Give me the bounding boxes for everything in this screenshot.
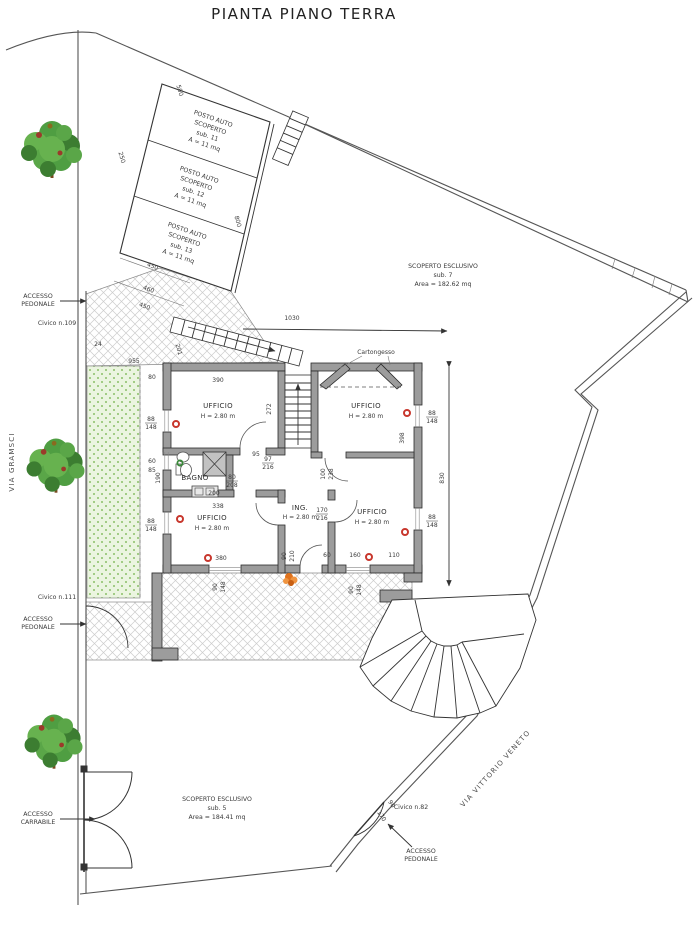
dimension-label: 216 <box>262 464 274 471</box>
dimension-label: 148 <box>356 584 363 596</box>
tree-icon <box>25 715 83 769</box>
scoperto-name: SCOPERTO ESCLUSIVO <box>182 796 252 803</box>
access-label: ACCESSO <box>406 848 436 855</box>
scoperto-sub: sub. 7 <box>434 272 453 279</box>
dimension-label: 160 <box>349 552 361 559</box>
dimension-label: 90 <box>281 552 288 560</box>
room-label-ufficio-tl: UFFICIO H = 2.80 m <box>201 402 236 420</box>
dimension-label: 272 <box>266 403 273 415</box>
dimension-label: 88 <box>428 410 436 417</box>
room-label-ing: ING. H = 2.80 m <box>283 504 318 521</box>
dimension-label: 100 <box>320 468 327 480</box>
dimension-label: 60 <box>323 552 331 559</box>
svg-text:UFFICIO: UFFICIO <box>357 508 387 516</box>
access-pedonale-right: ACCESSO PEDONALE <box>404 848 438 863</box>
dimension-label: 148 <box>145 526 157 533</box>
access-label: PEDONALE <box>21 624 55 631</box>
access-carrabile: ACCESSO CARRABILE <box>21 811 56 826</box>
room-label-ufficio-br: UFFICIO H = 2.80 m <box>355 508 390 526</box>
street-label-gramsci: VIA GRAMSCI <box>8 432 16 491</box>
svg-text:H = 2.80 m: H = 2.80 m <box>355 519 390 526</box>
svg-text:UFFICIO: UFFICIO <box>351 402 381 410</box>
dimension-label: 955 <box>128 358 140 365</box>
scoperto-esclusivo-bottom: SCOPERTO ESCLUSIVO sub. 5 Area = 184.41 … <box>182 796 252 821</box>
dimension-label: 148 <box>220 581 227 593</box>
utility-marker-green <box>177 460 182 465</box>
access-label: ACCESSO <box>23 811 53 818</box>
floor-plan-svg: PIANTA PIANO TERRA POSTO AUTO <box>0 0 700 925</box>
dimension-label: 88 <box>428 514 436 521</box>
svg-text:H = 2.80 m: H = 2.80 m <box>195 525 230 532</box>
dimension-label: 24 <box>94 341 102 348</box>
dimension-label: 380 <box>215 555 227 562</box>
dimension-label: 80 <box>228 474 236 481</box>
tree-icon <box>27 439 85 493</box>
fan-staircase <box>360 594 536 718</box>
access-label: ACCESSO <box>23 293 53 300</box>
garden-area <box>87 366 140 598</box>
room-label-ufficio-bl: UFFICIO H = 2.80 m <box>195 514 230 532</box>
access-label: ACCESSO <box>23 616 53 623</box>
dimension-label: 1030 <box>284 315 299 322</box>
scoperto-area: Area = 182.62 mq <box>415 281 472 288</box>
civico-109: Civico n.109 <box>38 320 76 327</box>
floor-plan-page: PIANTA PIANO TERRA POSTO AUTO <box>0 0 700 925</box>
dimension-label: 250 <box>116 151 126 164</box>
dimension-label: 210 <box>289 550 296 562</box>
internal-staircase <box>285 375 311 448</box>
dimension-label: 148 <box>426 418 438 425</box>
dimension-label: 148 <box>426 522 438 529</box>
dimension-label: 90 <box>348 586 355 594</box>
dimension-label: 88 <box>147 518 155 525</box>
dimension-label: 80 <box>148 374 156 381</box>
scoperto-esclusivo-right: SCOPERTO ESCLUSIVO sub. 7 Area = 182.62 … <box>408 263 478 288</box>
room-label-ufficio-tr: UFFICIO H = 2.80 m <box>349 402 384 420</box>
dimension-label: 148 <box>145 424 157 431</box>
dimension-label: 60 <box>148 458 156 465</box>
dimension-label: 238 <box>328 468 335 480</box>
dimension-label: 398 <box>399 432 406 444</box>
dimension-label: 390 <box>212 377 224 384</box>
dimension-label: 88 <box>147 416 155 423</box>
access-pedonale-top: ACCESSO PEDONALE <box>21 293 55 308</box>
dimension-label: 830 <box>439 472 446 484</box>
dimension-label: 90 <box>212 583 219 591</box>
dimension-label: 170 <box>316 507 328 514</box>
dimension-label: 97 <box>264 456 272 463</box>
dimension-label: 190 <box>155 472 162 484</box>
svg-text:Cartongesso: Cartongesso <box>357 349 395 356</box>
access-pedonale-mid: ACCESSO PEDONALE <box>21 616 55 631</box>
svg-text:H = 2.80 m: H = 2.80 m <box>201 413 236 420</box>
dimension-label: 208 <box>226 482 238 489</box>
access-label: PEDONALE <box>21 301 55 308</box>
svg-text:UFFICIO: UFFICIO <box>197 514 227 522</box>
scoperto-name: SCOPERTO ESCLUSIVO <box>408 263 478 270</box>
dimension-label: 200 <box>208 490 220 497</box>
dimension-label: 216 <box>316 515 328 522</box>
svg-text:H = 2.80 m: H = 2.80 m <box>349 413 384 420</box>
scoperto-area: Area = 184.41 mq <box>189 814 246 821</box>
dimension-label: 170 <box>375 809 387 823</box>
svg-text:UFFICIO: UFFICIO <box>203 402 233 410</box>
scoperto-sub: sub. 5 <box>208 805 227 812</box>
street-label-vittorio-veneto: VIA VITTORIO VENETO <box>459 729 532 809</box>
dimension-label: 338 <box>212 503 224 510</box>
civico-111: Civico n.111 <box>38 594 76 601</box>
svg-text:ING.: ING. <box>292 504 308 512</box>
tree-icon <box>21 121 82 178</box>
access-label: CARRABILE <box>21 819 56 826</box>
room-label-bagno: BAGNO <box>181 474 208 482</box>
page-title: PIANTA PIANO TERRA <box>211 5 397 23</box>
civico-82: Civico n.82 <box>394 804 428 811</box>
access-label: PEDONALE <box>404 856 438 863</box>
dimension-label: 85 <box>148 467 156 474</box>
svg-text:H = 2.80 m: H = 2.80 m <box>283 514 318 521</box>
boundary-steps <box>272 111 308 166</box>
dimension-label: 95 <box>252 451 260 458</box>
dimension-label: 110 <box>388 552 400 559</box>
